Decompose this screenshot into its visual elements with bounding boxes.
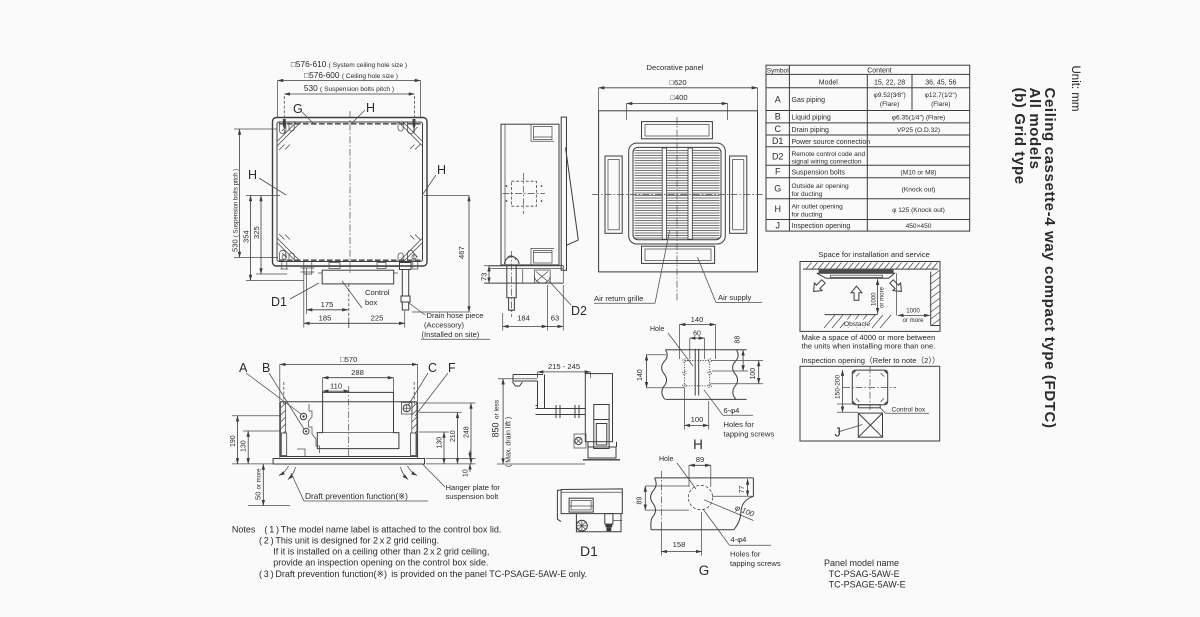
svg-text:Model: Model: [819, 79, 839, 86]
svg-text:Unit: mm: Unit: mm: [1069, 66, 1081, 112]
svg-text:D2: D2: [772, 152, 784, 162]
svg-text:D1: D1: [580, 543, 598, 559]
svg-text:Gas piping: Gas piping: [792, 97, 826, 104]
svg-text:Draft prevention function(※): Draft prevention function(※): [305, 491, 408, 501]
svg-text:185: 185: [319, 314, 332, 323]
svg-text:89: 89: [696, 455, 704, 464]
svg-text:for ducting: for ducting: [792, 191, 823, 198]
svg-text:H: H: [774, 204, 781, 214]
svg-text:Control: Control: [365, 288, 390, 297]
svg-text:Hole: Hole: [650, 326, 665, 333]
svg-text:15, 22, 28: 15, 22, 28: [874, 79, 905, 86]
svg-text:C: C: [428, 361, 437, 375]
svg-text:( 3 ) Draft prevention functio: ( 3 ) Draft prevention function(※) is pr…: [259, 569, 587, 579]
svg-text:box: box: [365, 298, 377, 307]
svg-text:D1: D1: [271, 295, 287, 309]
svg-text:H: H: [366, 101, 375, 115]
svg-text:450×450: 450×450: [906, 223, 932, 230]
svg-text:Notes ( 1 ) The model name lab: Notes ( 1 ) The model name label is atta…: [232, 525, 502, 535]
svg-text:A: A: [239, 361, 248, 375]
svg-text:(Installed on site): (Installed on site): [422, 330, 480, 339]
svg-text:B: B: [775, 112, 781, 122]
svg-text:225: 225: [371, 314, 384, 323]
svg-text:Inspection opening: Inspection opening: [792, 223, 851, 230]
svg-text:φ9.52(3⁄8″): φ9.52(3⁄8″): [873, 92, 905, 99]
svg-text:88: 88: [735, 336, 742, 344]
svg-text:Air supply: Air supply: [718, 293, 752, 302]
svg-text:F: F: [775, 167, 781, 177]
svg-text:Obstacle: Obstacle: [844, 321, 870, 328]
svg-text:Hanger plate for: Hanger plate for: [446, 483, 501, 492]
svg-text:Control box: Control box: [892, 407, 926, 414]
svg-text:Holes for: Holes for: [730, 550, 761, 559]
svg-text:Content: Content: [867, 68, 892, 75]
svg-text:248: 248: [464, 426, 471, 438]
svg-text:100: 100: [750, 368, 757, 380]
svg-text:(Accessory): (Accessory): [424, 321, 465, 330]
svg-text:D1: D1: [772, 136, 784, 146]
svg-text:4-φ4: 4-φ4: [731, 535, 747, 544]
svg-text:530 ( Suspension bolts pitch ): 530 ( Suspension bolts pitch ): [304, 83, 394, 93]
svg-text:J: J: [835, 426, 841, 440]
svg-text:D2: D2: [571, 304, 587, 318]
svg-text:850 or less: 850 or less: [491, 399, 501, 437]
svg-text:325: 325: [252, 226, 261, 239]
svg-text:φ 125 (Knock out): φ 125 (Knock out): [892, 207, 945, 214]
svg-text:175: 175: [321, 300, 334, 309]
svg-text:190: 190: [230, 435, 237, 447]
svg-text:□570: □570: [340, 355, 357, 364]
svg-text:F: F: [448, 361, 456, 375]
svg-text:Space for installation and ser: Space for installation and service: [818, 250, 929, 259]
svg-text:215 - 245: 215 - 245: [548, 362, 580, 371]
svg-text:1000: 1000: [906, 308, 920, 315]
svg-text:H: H: [437, 163, 446, 177]
svg-text:A: A: [775, 94, 781, 104]
svg-text:Decorative panel: Decorative panel: [647, 63, 704, 72]
svg-text:φ6.35(1⁄4″) (Flare): φ6.35(1⁄4″) (Flare): [892, 115, 946, 122]
svg-text:TC-PSAGE-5AW-E: TC-PSAGE-5AW-E: [829, 580, 906, 590]
svg-text:tapping screws: tapping screws: [724, 430, 775, 439]
svg-text:C: C: [774, 124, 781, 134]
svg-text:140: 140: [691, 315, 704, 324]
svg-text:1000: 1000: [871, 292, 878, 306]
svg-text:G: G: [774, 183, 781, 193]
svg-text:VP25 (O.D.32): VP25 (O.D.32): [897, 127, 940, 134]
svg-text:H: H: [248, 168, 257, 182]
svg-text:288: 288: [351, 368, 364, 377]
svg-text:( 2 ) This unit is designed fo: ( 2 ) This unit is designed for 2 x 2 gr…: [259, 536, 439, 546]
svg-text:77: 77: [739, 486, 746, 494]
svg-text:50 or more: 50 or more: [254, 468, 263, 500]
svg-text:140: 140: [637, 369, 644, 381]
svg-text:354: 354: [242, 230, 251, 243]
svg-text:63: 63: [551, 314, 559, 323]
svg-text:tapping screws: tapping screws: [730, 559, 781, 568]
svg-text:the units when installing more: the units when installing more than one.: [802, 341, 936, 350]
svg-text:184: 184: [517, 314, 530, 323]
svg-text:Liquid piping: Liquid piping: [792, 115, 831, 122]
svg-text:B: B: [262, 361, 270, 375]
svg-text:provide an inspection opening: provide an inspection opening on the con…: [273, 558, 488, 568]
svg-text:(Flare): (Flare): [931, 101, 950, 108]
svg-text:Drain piping: Drain piping: [792, 127, 829, 134]
svg-text:6-φ4: 6-φ4: [724, 406, 740, 415]
svg-text:□576-610 ( System ceiling hole: □576-610 ( System ceiling hole size ): [291, 59, 407, 69]
svg-text:(b) Grid type: (b) Grid type: [1011, 88, 1028, 185]
svg-text:Holes for: Holes for: [724, 420, 755, 429]
svg-text:G: G: [699, 563, 710, 578]
svg-text:Suspension bolts: Suspension bolts: [792, 170, 846, 177]
svg-text:Symbol: Symbol: [767, 67, 790, 74]
svg-text:or more: or more: [903, 317, 925, 324]
svg-text:100: 100: [691, 415, 704, 424]
svg-text:signal wiring connection: signal wiring connection: [792, 159, 862, 166]
svg-text:(M10 or M8): (M10 or M8): [901, 170, 937, 177]
svg-text:210: 210: [450, 430, 457, 442]
svg-text:110: 110: [330, 381, 342, 390]
svg-text:φ12.7(1⁄2″): φ12.7(1⁄2″): [925, 92, 957, 99]
svg-text:(Flare): (Flare): [880, 101, 899, 108]
svg-text:G: G: [293, 102, 303, 116]
svg-text:□576-600 ( Ceiling hole size ): □576-600 ( Ceiling hole size ): [304, 70, 398, 80]
svg-text:(Knock out): (Knock out): [902, 186, 936, 193]
svg-text:467: 467: [457, 246, 466, 259]
svg-text:Power source connection: Power source connection: [792, 139, 871, 146]
svg-text:suspension bolt: suspension bolt: [446, 492, 500, 501]
svg-text:530 ( Suspension bolts pitch ): 530 ( Suspension bolts pitch ): [231, 169, 240, 252]
svg-text:60: 60: [693, 331, 701, 338]
svg-text:73: 73: [480, 273, 489, 281]
svg-text:158: 158: [673, 540, 686, 549]
svg-text:10: 10: [463, 469, 470, 477]
svg-text:Air outlet opening: Air outlet opening: [792, 204, 844, 211]
svg-text:or more: or more: [879, 286, 886, 308]
svg-text:Outside air opening: Outside air opening: [792, 183, 850, 190]
svg-text:89: 89: [637, 497, 644, 505]
svg-text:Hole: Hole: [659, 456, 674, 463]
svg-text:Panel model name: Panel model name: [824, 558, 899, 568]
svg-text:J: J: [775, 220, 780, 230]
svg-text:150-200: 150-200: [835, 374, 842, 399]
svg-text:Air return grille: Air return grille: [594, 294, 643, 303]
svg-text:for ducting: for ducting: [792, 212, 823, 219]
svg-text:130: 130: [437, 437, 444, 449]
svg-text:□400: □400: [670, 93, 687, 102]
svg-text:( Max. drain lift ): ( Max. drain lift ): [506, 417, 513, 467]
svg-text:If it is installed on a ceilin: If it is installed on a ceiling other th…: [273, 547, 489, 557]
svg-text:□620: □620: [669, 78, 686, 87]
svg-text:Inspection opening（Refer to no: Inspection opening（Refer to note（2））: [801, 356, 939, 365]
svg-text:36, 45, 56: 36, 45, 56: [925, 79, 956, 86]
svg-text:TC-PSAG-5AW-E: TC-PSAG-5AW-E: [829, 569, 900, 579]
svg-text:H: H: [693, 437, 703, 452]
svg-text:Remote control code and: Remote control code and: [792, 151, 866, 158]
svg-text:130: 130: [241, 440, 248, 452]
